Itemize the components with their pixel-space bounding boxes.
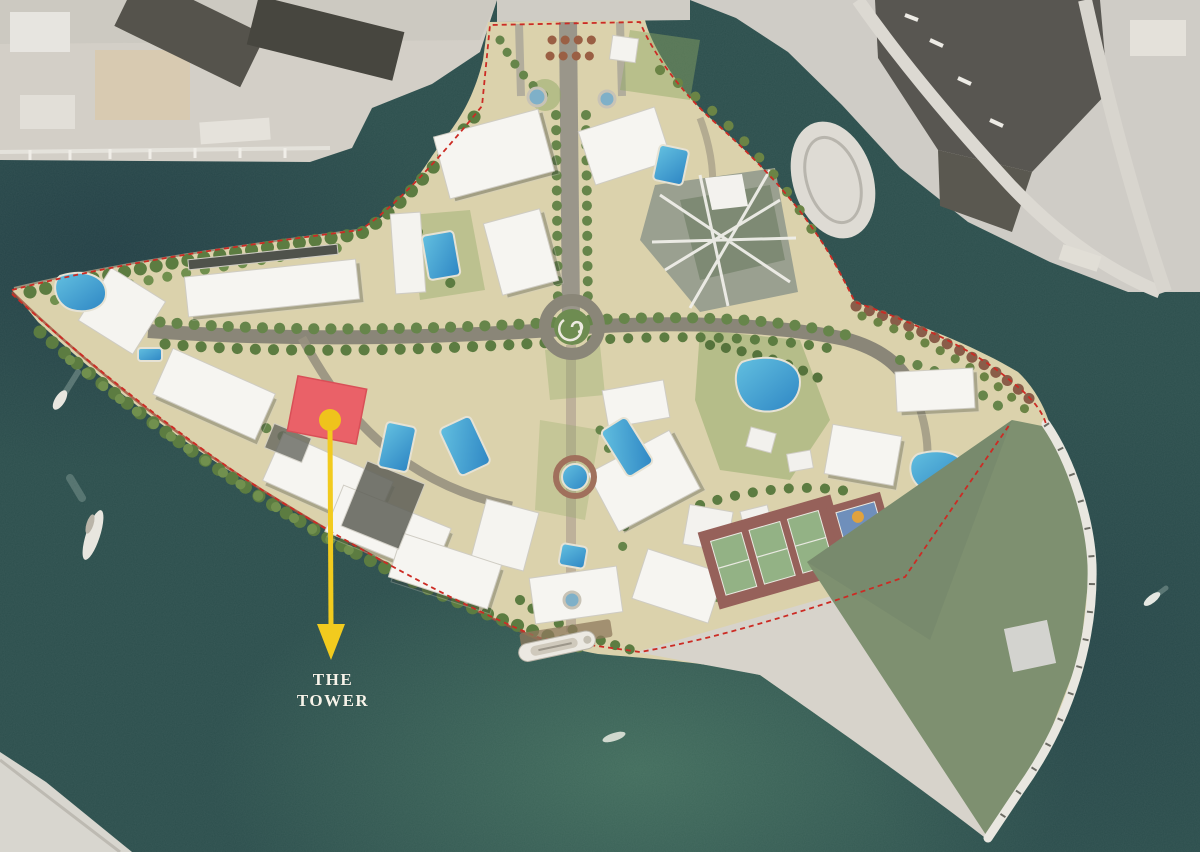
tower-label-line2: TOWER — [297, 691, 369, 710]
city-mainland-strip — [497, 0, 690, 22]
tower-arrow-line — [330, 428, 331, 626]
tower-label-line1: THE — [313, 670, 353, 689]
tower-marker-dot — [319, 409, 341, 431]
helipad — [1004, 620, 1056, 672]
master-plan-map: THE TOWER — [0, 0, 1200, 852]
